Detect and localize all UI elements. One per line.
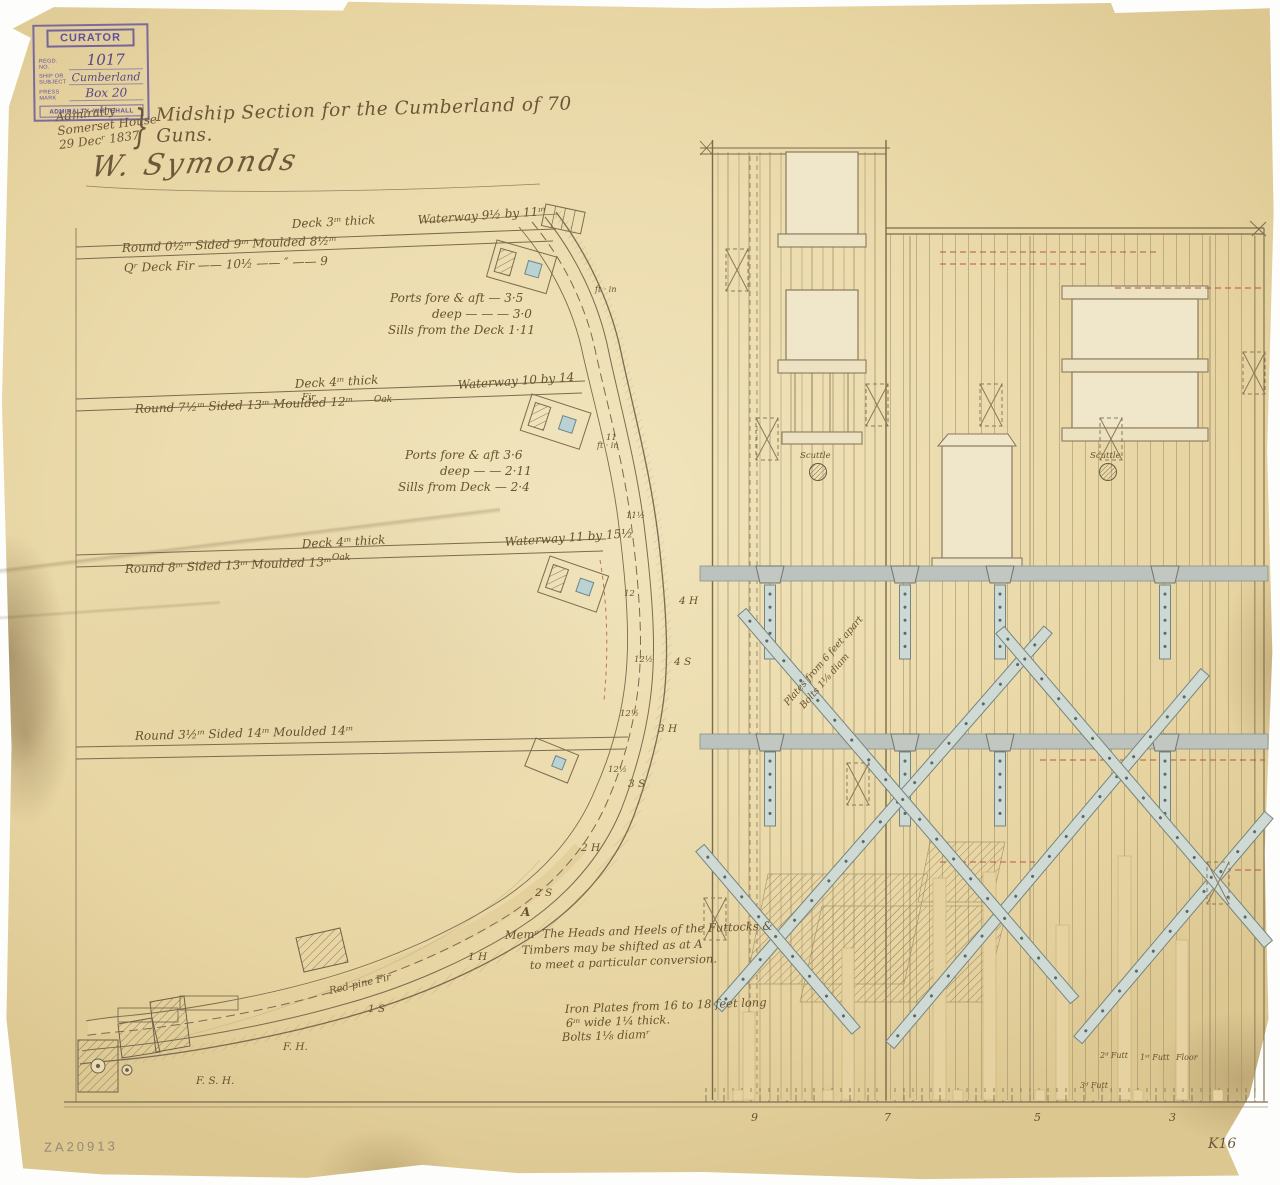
brace-mark: } — [133, 99, 149, 153]
wale-band-lower — [700, 734, 1268, 751]
svg-text:4 S: 4 S — [673, 656, 691, 668]
station-number: 7 — [884, 1111, 891, 1124]
svg-text:ft · in: ft · in — [594, 285, 617, 294]
svg-text:3 S: 3 S — [628, 778, 645, 790]
red-frame-mark — [600, 560, 607, 700]
deck-annotations: Deck 3ᶦⁿ thick Waterway 9½ by 11ᶦⁿ Round… — [121, 204, 634, 743]
svg-text:Bolts 1⅛ diamʳ: Bolts 1⅛ diamʳ — [561, 1027, 651, 1044]
timber-label: Floor — [1175, 1053, 1199, 1062]
svg-text:A: A — [520, 905, 530, 919]
svg-text:12½: 12½ — [634, 654, 653, 665]
svg-text:Round 3½ᶦⁿ Sided 14ᶦⁿ: Round 3½ᶦⁿ Sided 14ᶦⁿ Moulded 14ᶦⁿ — [134, 723, 354, 743]
svg-text:Qʳ Deck Fir —— 10½ —— ″ —— 9: Qʳ Deck Fir —— 10½ —— ″ —— 9 — [124, 254, 329, 275]
curator-stamp-title: CURATOR — [46, 28, 134, 47]
svg-text:12½: 12½ — [608, 764, 627, 775]
station-number: 5 — [1034, 1111, 1041, 1124]
svg-text:Waterway 9½ by 11ᶦⁿ: Waterway 9½ by 11ᶦⁿ — [417, 204, 546, 227]
svg-text:2 H: 2 H — [580, 842, 601, 854]
svg-text:1 H: 1 H — [468, 951, 488, 963]
svg-text:2 S: 2 S — [534, 887, 552, 899]
archive-number: ZA20913 — [44, 1138, 118, 1155]
svg-text:Sills from Deck — 2·4: Sills from Deck — 2·4 — [398, 480, 530, 494]
timber-label: 2ᵈ Futt — [1099, 1051, 1129, 1060]
svg-text:Deck 4ᶦⁿ thick: Deck 4ᶦⁿ thick — [300, 533, 385, 551]
svg-text:Round 7½ᶦⁿ Sided 13ᶦⁿ: Round 7½ᶦⁿ Sided 13ᶦⁿ Moulded 12ᶦⁿ — [134, 394, 354, 416]
svg-text:11½: 11½ — [626, 510, 645, 521]
svg-text:Round 8ᶦⁿ Sided 13ᶦⁿ: Round 8ᶦⁿ Sided 13ᶦⁿ Moulded 13ᶦⁿ — [124, 555, 332, 576]
station-number: 9 — [751, 1111, 758, 1124]
hatch-coaming-middle — [932, 434, 1022, 571]
press-mark-label: Press Mark — [39, 89, 69, 101]
svg-text:4 H: 4 H — [678, 595, 699, 607]
station-number: 3 — [1169, 1111, 1176, 1124]
regd-no-label: Regd. No. — [39, 58, 69, 70]
svg-text:Sills from the Deck 1·11: Sills from the Deck 1·11 — [388, 323, 535, 337]
svg-text:11: 11 — [606, 433, 617, 443]
svg-text:1 S: 1 S — [368, 1003, 385, 1015]
svg-text:Waterway 11 by 15½: Waterway 11 by 15½ — [504, 526, 633, 549]
svg-text:12: 12 — [624, 589, 635, 599]
svg-text:12½: 12½ — [620, 708, 639, 719]
svg-text:3 H: 3 H — [658, 723, 678, 735]
notes: Memᵒ The Heads and Heels of the Futtocks… — [327, 919, 773, 1044]
svg-text:Oak: Oak — [374, 395, 392, 405]
svg-text:F. S. H.: F. S. H. — [195, 1075, 234, 1087]
ship-subject-label: SHIP OR SUBJECT — [39, 73, 69, 85]
midship-section-view: Deck 3ᶦⁿ thick Waterway 9½ by 11ᶦⁿ Round… — [76, 184, 773, 1102]
wale-band-upper — [700, 566, 1268, 583]
svg-text:Waterway 10 by 14: Waterway 10 by 14 — [457, 370, 574, 392]
svg-text:deep — — — 3·0: deep — — — 3·0 — [432, 307, 532, 321]
hatch-coaming-right — [1062, 286, 1208, 441]
sheet-reference: K16 — [1208, 1136, 1236, 1152]
keel-detail — [78, 928, 348, 1092]
scanned-ship-plan: Scuttle Scuttle — [0, 0, 1280, 1185]
svg-text:Deck 3ᶦⁿ thick: Deck 3ᶦⁿ thick — [290, 213, 375, 231]
svg-text:deep — — 2·11: deep — — 2·11 — [440, 464, 532, 478]
ship-subject-value: Cumberland — [69, 70, 143, 85]
svg-text:Ports fore & aft — 3·5: Ports fore & aft — 3·5 — [389, 291, 523, 305]
station-scale: 9 7 5 3 — [64, 1088, 1268, 1124]
deck-lines — [76, 214, 628, 759]
regd-no-value: 1017 — [69, 50, 143, 70]
svg-text:Round 0½ᶦⁿ Sided 9ᶦⁿ: Round 0½ᶦⁿ Sided 9ᶦⁿ Moulded 8½ᶦⁿ — [121, 234, 337, 256]
svg-text:Ports fore & aft 3·6: Ports fore & aft 3·6 — [404, 448, 523, 462]
timber-label: 1ˢᵗ Futt — [1140, 1053, 1170, 1062]
svg-text:F. H.: F. H. — [282, 1041, 308, 1053]
scuttle-left-label: Scuttle — [800, 451, 831, 461]
svg-text:Oak: Oak — [332, 553, 350, 563]
